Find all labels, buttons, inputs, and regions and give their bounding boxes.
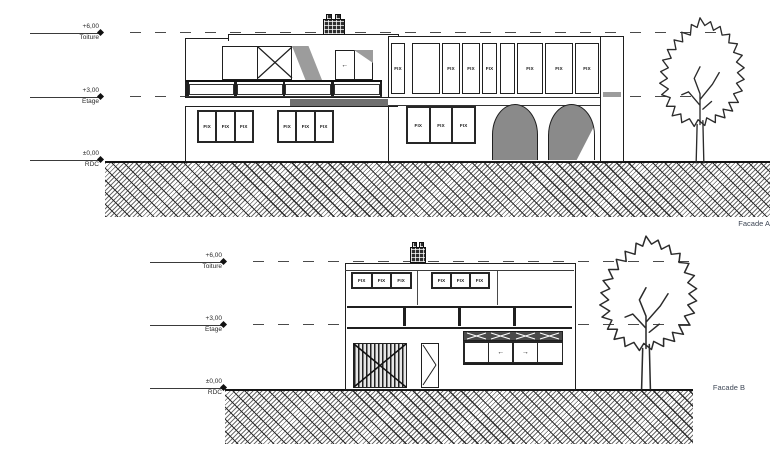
window-pane: FIX [408, 108, 429, 142]
balcony-slab-dark [290, 99, 397, 106]
sliding-pane: ← [489, 343, 512, 362]
window-group: FIX FIX FIX [431, 272, 490, 289]
railing-panel [237, 84, 283, 96]
ground-hatch-a [105, 161, 770, 217]
terrace-glass-doors [222, 46, 292, 80]
window-pane: FIX [471, 274, 488, 287]
window-pane: FIX [453, 108, 474, 142]
window-pane: FIX [279, 112, 295, 141]
slide-arrow-icon: → [522, 349, 529, 356]
fix-label: FIX [555, 66, 563, 71]
garage-x-brace-icon [353, 343, 407, 388]
transom-x-icon [489, 332, 514, 340]
tree-a [652, 13, 748, 163]
sliding-pane: → [514, 343, 537, 362]
railing-panel [285, 84, 331, 96]
window-pane: FIX [199, 112, 215, 141]
fix-label: FIX [283, 124, 291, 129]
level-value-rdc-a: ±0,00 [39, 151, 99, 158]
window-pane: FIX [433, 274, 450, 287]
fix-label: FIX [476, 278, 484, 283]
arch-highlight [569, 123, 594, 160]
fix-label: FIX [240, 124, 248, 129]
fix-label: FIX [358, 278, 366, 283]
level-value-etage-b: +3,00 [162, 316, 222, 323]
return-wall-band [603, 92, 621, 97]
band-window: FIX [545, 43, 573, 94]
window-pane [465, 343, 488, 362]
facade-a-label: Facade A [700, 219, 770, 228]
window-pane: FIX [353, 274, 371, 287]
window-pane: FIX [316, 112, 332, 141]
band-window [500, 43, 515, 94]
railing-panel [189, 84, 235, 96]
railing-post [380, 82, 383, 96]
band-window: FIX [391, 43, 405, 94]
fix-label: FIX [397, 278, 405, 283]
fix-label: FIX [378, 278, 386, 283]
sliding-window-unit: ← → [463, 331, 563, 365]
fix-label: FIX [415, 123, 423, 128]
window-pane: FIX [297, 112, 313, 141]
level-name-toiture-b: Toiture [162, 264, 222, 271]
window-pane: FIX [431, 108, 452, 142]
elevation-drawing: +6,00 Toiture +3,00 Etage ±0,00 RDC ← [0, 0, 775, 450]
band-window: FIX [575, 43, 599, 94]
facade-b-label: Facade B [675, 383, 745, 392]
fix-label: FIX [460, 123, 468, 128]
slide-arrow-icon: ← [341, 62, 348, 69]
fix-label: FIX [438, 278, 446, 283]
level-name-toiture-a: Toiture [39, 35, 99, 42]
level-name-rdc-b: RDC [162, 390, 222, 397]
fix-label: FIX [320, 124, 328, 129]
band-window: FIX [442, 43, 460, 94]
level-name-etage-a: Etage [39, 99, 99, 106]
tree-b [591, 231, 701, 389]
fix-label: FIX [203, 124, 211, 129]
window-group: FIX FIX FIX [351, 272, 412, 289]
sliding-window-panes: ← → [463, 341, 563, 363]
window-group: FIX FIX FIX [406, 106, 476, 144]
band-window: FIX [462, 43, 480, 94]
fix-label: FIX [526, 66, 534, 71]
slide-arrow-icon: ← [497, 349, 504, 356]
strip-window-band [347, 306, 572, 329]
band-window: FIX [517, 43, 543, 94]
window-pane: FIX [452, 274, 469, 287]
window-pane: FIX [392, 274, 410, 287]
building-a-return-wall [600, 36, 624, 162]
arch-opening [492, 104, 538, 160]
window-group: FIX FIX FIX [197, 110, 254, 143]
transom-x-icon [513, 332, 538, 340]
entry-door [421, 343, 439, 388]
fix-label: FIX [467, 66, 475, 71]
parapet-line-b [345, 270, 574, 271]
band-mullion [513, 308, 516, 326]
dashed-line-toiture-a [130, 32, 722, 33]
wall-joint [497, 271, 498, 305]
band-window [412, 43, 440, 94]
band-mullion [403, 308, 406, 326]
band-window: FIX [482, 43, 497, 94]
fix-label: FIX [486, 66, 494, 71]
window-pane: FIX [217, 112, 233, 141]
arch-opening [548, 104, 595, 160]
chimney-b [410, 247, 426, 263]
railing-panel [334, 84, 380, 96]
level-name-etage-b: Etage [162, 327, 222, 334]
chimney-a [323, 19, 345, 35]
window-pane: FIX [373, 274, 391, 287]
fix-label: FIX [437, 123, 445, 128]
fix-label: FIX [222, 124, 230, 129]
transom-band [463, 331, 563, 341]
wall-joint [417, 271, 418, 305]
glass-pane [223, 47, 258, 79]
window-pane: FIX [236, 112, 252, 141]
x-brace-icon [258, 47, 292, 78]
sliding-door-pane: ← [336, 51, 355, 79]
window-pane [538, 343, 561, 362]
level-value-toiture-a: +6,00 [39, 24, 99, 31]
band-mullion [458, 308, 461, 326]
level-value-toiture-b: +6,00 [162, 253, 222, 260]
level-name-rdc-a: RDC [39, 162, 99, 169]
ground-hatch-b [225, 389, 693, 444]
fix-label: FIX [302, 124, 310, 129]
fix-label: FIX [394, 66, 402, 71]
level-value-etage-a: +3,00 [39, 88, 99, 95]
glass-pane-x [258, 47, 292, 79]
upper-glazing-band: FIX FIX FIX FIX FIX FIX FIX [390, 40, 600, 98]
fix-label: FIX [457, 278, 465, 283]
door-swing-icon [422, 344, 437, 386]
transom-x-icon [538, 332, 563, 340]
fix-label: FIX [447, 66, 455, 71]
window-group: FIX FIX FIX [277, 110, 334, 143]
building-a-left-parapet [228, 34, 399, 41]
level-value-rdc-b: ±0,00 [162, 379, 222, 386]
fix-label: FIX [583, 66, 591, 71]
transom-x-icon [464, 332, 489, 340]
balcony-railing [186, 80, 382, 97]
